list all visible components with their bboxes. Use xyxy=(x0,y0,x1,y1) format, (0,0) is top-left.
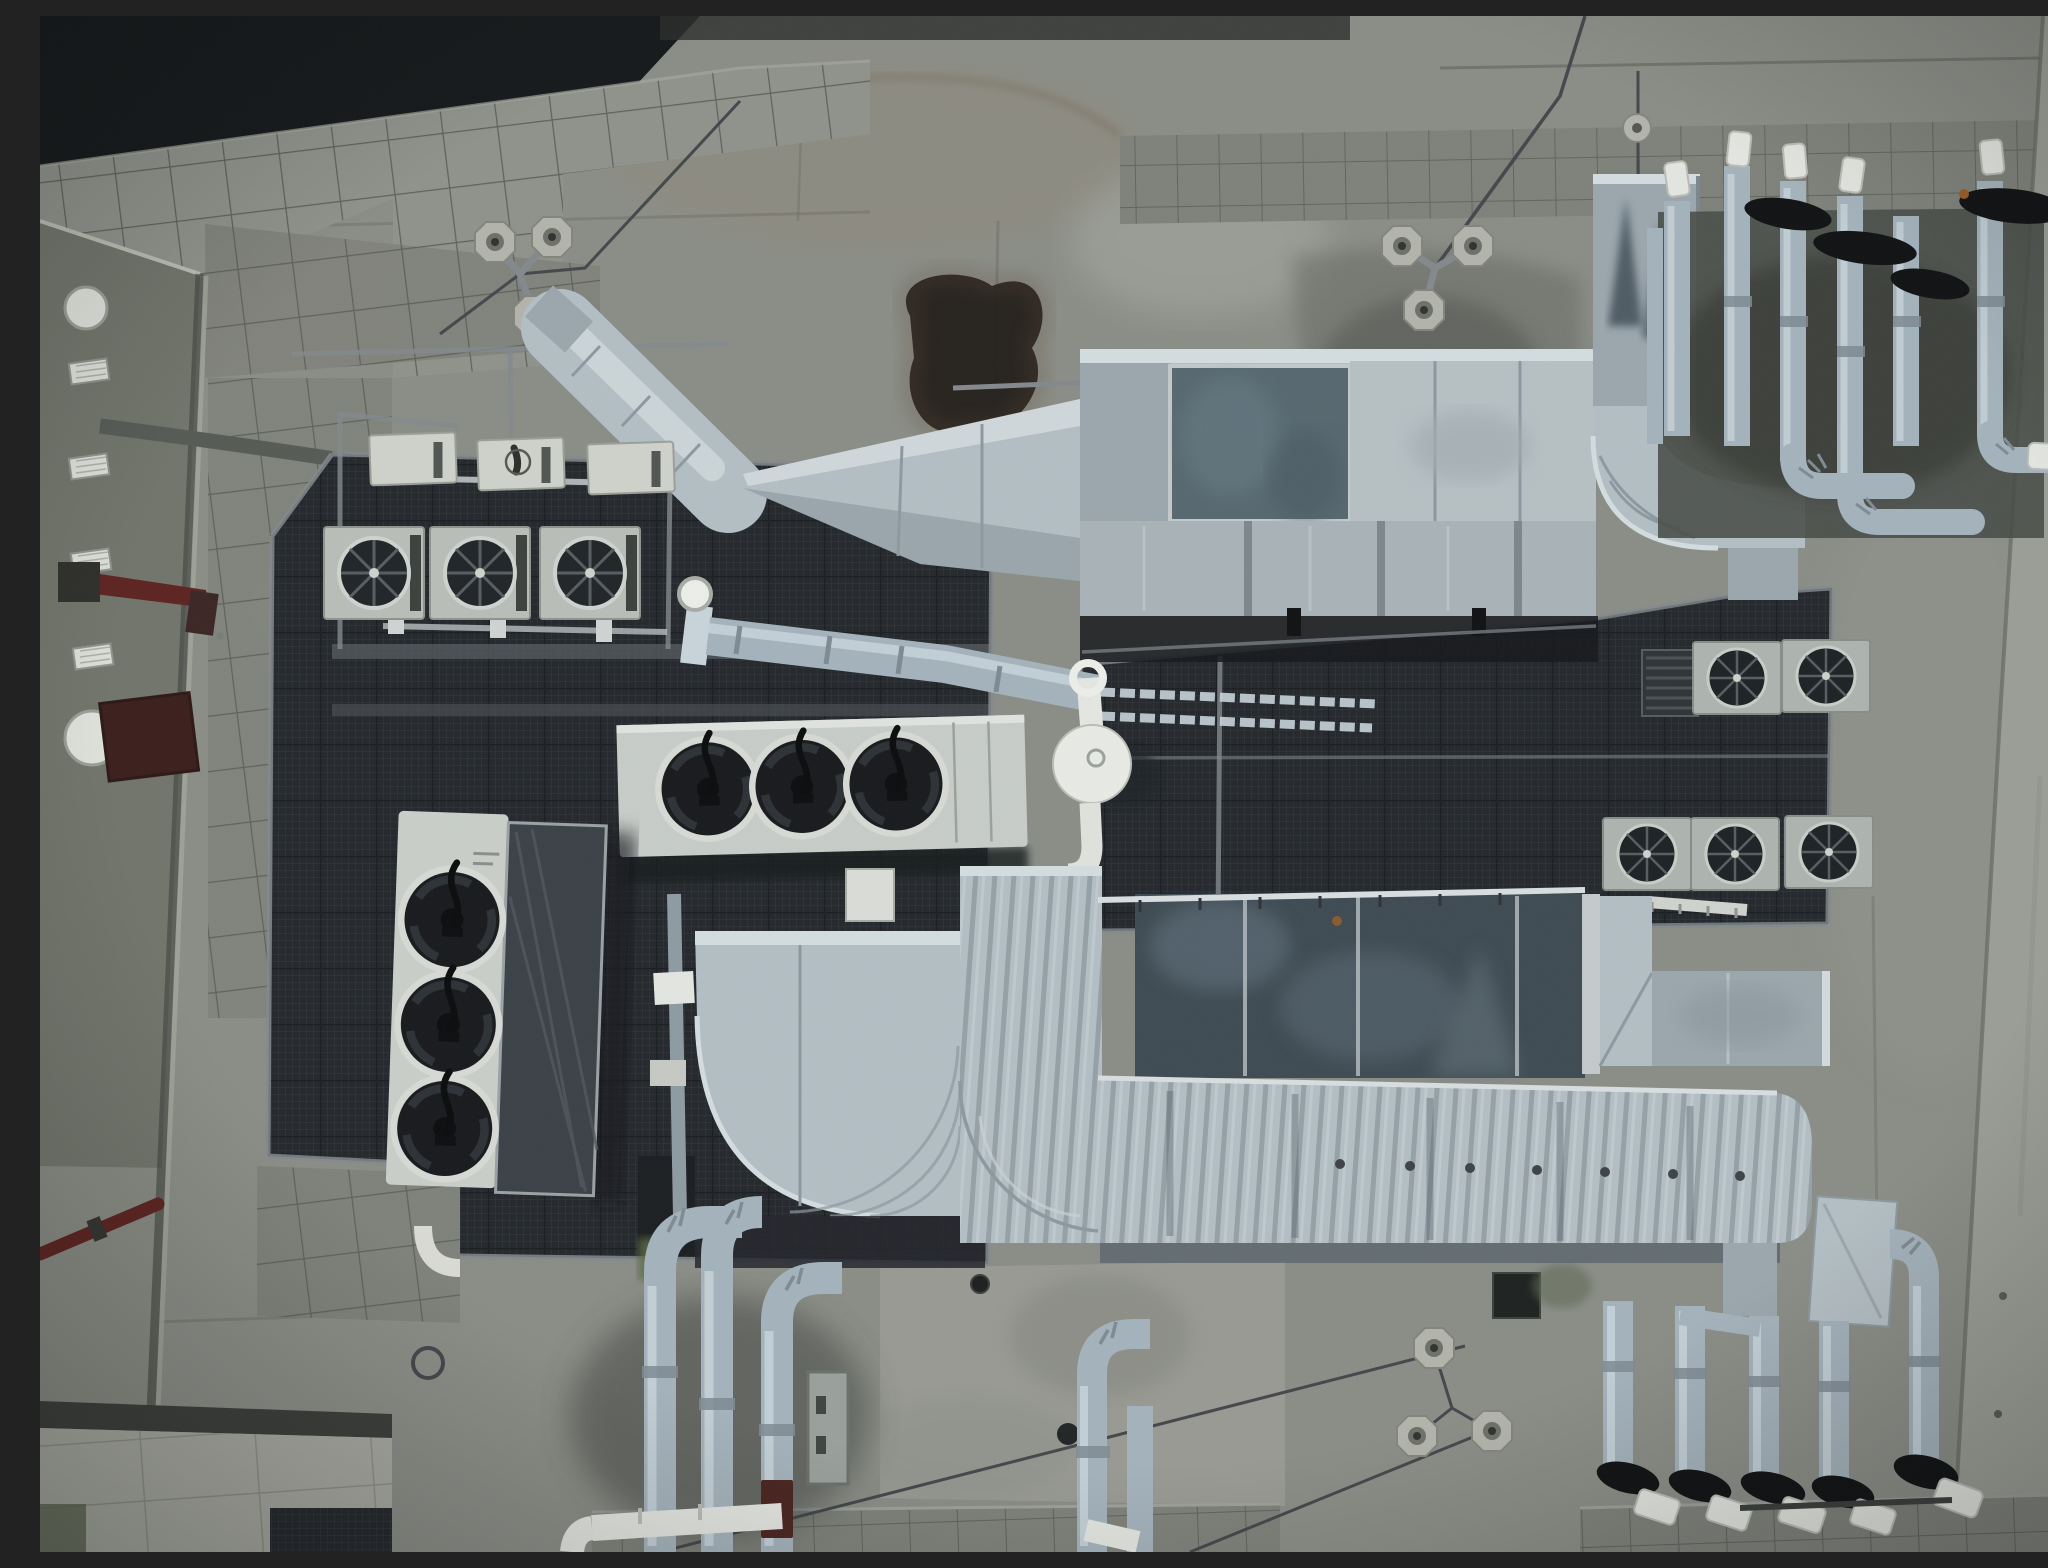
vignette-overlay xyxy=(40,16,2048,1552)
rooftop-aerial-photo: Aerial top-down view of a rooftop with H… xyxy=(40,16,2048,1552)
